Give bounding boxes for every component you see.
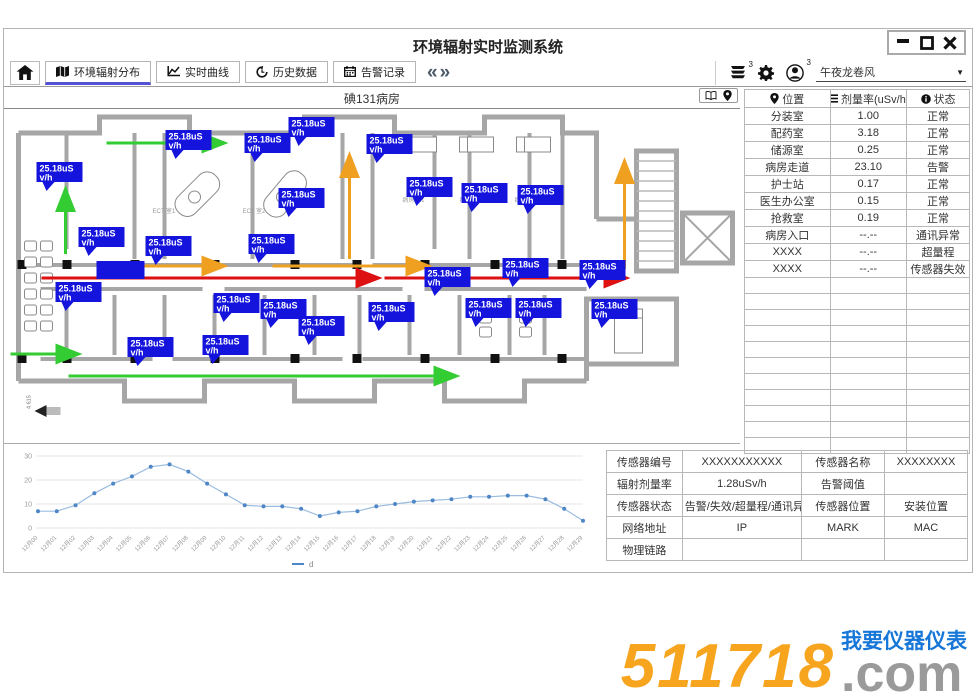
sensor-info-row: 物理链路 — [607, 539, 968, 561]
toolbar-right: 3 3 午夜龙卷风 ▼ — [715, 61, 966, 85]
x-tick-label: 12月08 — [171, 534, 190, 553]
location-cell: 病房入口 — [745, 227, 831, 244]
tab-label: 告警记录 — [361, 64, 405, 80]
app-window: 环境辐射实时监测系统 环境辐射分布实时曲线历史数据告警记录 « — [3, 28, 973, 573]
dose-cell: --.-- — [830, 244, 907, 261]
book-icon[interactable] — [705, 91, 717, 101]
tab-label: 环境辐射分布 — [74, 64, 140, 80]
user-dropdown[interactable]: 午夜龙卷风 ▼ — [816, 63, 966, 82]
dose-cell: 0.19 — [830, 210, 907, 227]
sensor-info-cell: 传感器名称 — [801, 451, 884, 473]
list-icon — [830, 94, 838, 103]
chart-panel: 010203012月0012月0112月0212月0312月0412月0512月… — [4, 448, 600, 576]
svg-text:v/h: v/h — [282, 199, 295, 209]
svg-text:v/h: v/h — [40, 173, 53, 183]
status-row-empty — [745, 310, 970, 326]
floorplan-tools — [699, 88, 738, 103]
sensor-info-row: 传感器编号XXXXXXXXXXX传感器名称XXXXXXXX — [607, 451, 968, 473]
logo-number: 511718 — [621, 642, 835, 692]
messages-icon — [730, 66, 746, 79]
status-row-empty — [745, 342, 970, 358]
sensor-tags-layer: 25.18uSv/h25.18uSv/h25.18uSv/h25.18uSv/h… — [37, 117, 638, 366]
dose-cell: 0.25 — [830, 142, 907, 159]
x-tick-label: 12月21 — [415, 534, 434, 553]
curve-icon — [167, 66, 180, 77]
dose-cell: 1.00 — [830, 108, 907, 125]
room-label: ECT 室1 — [153, 207, 177, 215]
messages-badge: 3 — [749, 60, 753, 69]
sensor-info-cell: 辐射剂量率 — [607, 473, 683, 495]
column-header: 剂量率(uSv/h) — [830, 90, 907, 108]
main-area: 碘131病房 — [4, 87, 972, 444]
status-row-empty — [745, 358, 970, 374]
status-row[interactable]: 病房入口--.--通讯异常 — [745, 227, 970, 244]
status-row[interactable]: XXXX--.--超量程 — [745, 244, 970, 261]
tab-alarms[interactable]: 告警记录 — [333, 61, 416, 83]
history-icon — [256, 66, 268, 78]
x-tick-label: 12月16 — [321, 534, 340, 553]
x-tick-label: 12月24 — [472, 534, 491, 553]
status-row-empty — [745, 294, 970, 310]
floorplan-header: 碘131病房 — [4, 87, 740, 109]
user-badge: 3 — [807, 58, 811, 67]
svg-text:v/h: v/h — [131, 348, 144, 358]
sensor-info-cell — [884, 539, 967, 561]
x-tick-label: 12月02 — [58, 534, 77, 553]
tab-strip: 环境辐射分布实时曲线历史数据告警记录 — [45, 61, 416, 85]
sensor-info-cell: 告警阈值 — [801, 473, 884, 495]
sensor-info-cell — [801, 539, 884, 561]
chevron-double-left-icon[interactable]: « — [427, 63, 438, 83]
home-button[interactable] — [10, 61, 40, 85]
x-tick-label: 12月28 — [547, 534, 566, 553]
location-cell: 病房走道 — [745, 159, 831, 176]
sensor-tag[interactable]: 25.18uSv/h — [425, 267, 471, 296]
tab-history[interactable]: 历史数据 — [245, 61, 328, 83]
room-label: ECT 室2 — [243, 207, 267, 215]
status-row[interactable]: 抢救室0.19正常 — [745, 210, 970, 227]
x-tick-label: 12月19 — [378, 534, 397, 553]
location-cell: 配药室 — [745, 125, 831, 142]
status-cell: 通讯异常 — [907, 227, 970, 244]
svg-text:v/h: v/h — [410, 188, 423, 198]
floorplan-drawing: ECT 室1ECT 室2病房001病房002病房0034.615 25.18uS… — [4, 109, 738, 442]
svg-text:v/h: v/h — [465, 194, 478, 204]
x-tick-label: 12月04 — [96, 534, 115, 553]
svg-text:v/h: v/h — [370, 145, 383, 155]
page-title: 环境辐射实时监测系统 — [4, 36, 972, 57]
sensor-tag[interactable]: 25.18uSv/h — [166, 130, 212, 159]
svg-text:v/h: v/h — [428, 278, 441, 288]
pin-icon[interactable] — [723, 90, 732, 101]
svg-text:v/h: v/h — [469, 309, 482, 319]
tab-label: 实时曲线 — [185, 64, 229, 80]
y-tick-label: 20 — [24, 478, 32, 485]
svg-text:v/h: v/h — [169, 141, 182, 151]
status-row-empty — [745, 278, 970, 294]
sensor-info-table: 传感器编号XXXXXXXXXXX传感器名称XXXXXXXX辐射剂量率1.28uS… — [606, 450, 968, 561]
location-cell: XXXX — [745, 261, 831, 278]
tab-realtime[interactable]: 实时曲线 — [156, 61, 240, 83]
x-tick-label: 12月11 — [228, 534, 247, 553]
status-panel: 位置剂量率(uSv/h)状态分装室1.00正常配药室3.18正常储源室0.25正… — [740, 87, 972, 444]
site-logo: 511718 我要仪器仪表 .com — [621, 631, 967, 692]
x-tick-label: 12月15 — [303, 534, 322, 553]
x-tick-label: 12月05 — [115, 534, 134, 553]
screen: 环境辐射实时监测系统 环境辐射分布实时曲线历史数据告警记录 « — [0, 0, 979, 700]
sensor-info-cell: 传感器位置 — [801, 495, 884, 517]
sensor-info-cell: 告警/失效/超量程/通讯异常 — [682, 495, 801, 517]
close-button[interactable] — [942, 35, 957, 50]
x-tick-label: 12月14 — [284, 534, 303, 553]
sensor-info-cell: XXXXXXXX — [884, 451, 967, 473]
dose-cell: 3.18 — [830, 125, 907, 142]
status-cell: 超量程 — [907, 244, 970, 261]
dose-cell: 0.17 — [830, 176, 907, 193]
sensor-info-cell — [884, 473, 967, 495]
svg-text:v/h: v/h — [252, 245, 265, 255]
y-tick-label: 10 — [24, 502, 32, 509]
dose-cell: 23.10 — [830, 159, 907, 176]
sensor-info-row: 网络地址IPMARKMAC — [607, 517, 968, 539]
x-tick-label: 12月06 — [134, 534, 153, 553]
info-icon — [921, 94, 931, 104]
svg-text:v/h: v/h — [372, 313, 385, 323]
status-row[interactable]: 配药室3.18正常 — [745, 125, 970, 142]
chevron-double-right-icon[interactable]: » — [440, 63, 451, 83]
svg-text:v/h: v/h — [206, 346, 219, 356]
status-row-empty — [745, 326, 970, 342]
svg-text:v/h: v/h — [59, 293, 72, 303]
home-icon — [16, 65, 34, 80]
status-cell: 传感器失效 — [907, 261, 970, 278]
x-tick-label: 12月12 — [246, 534, 265, 553]
minimize-icon — [897, 36, 910, 49]
sensor-tag[interactable]: 25.18uSv/h — [503, 258, 549, 287]
entrance-marker — [35, 405, 61, 417]
status-row[interactable]: 分装室1.00正常 — [745, 108, 970, 125]
window-controls — [887, 30, 966, 55]
sensor-info-cell: XXXXXXXXXXX — [682, 451, 801, 473]
sensor-info-cell — [682, 539, 801, 561]
location-cell: 储源室 — [745, 142, 831, 159]
svg-text:v/h: v/h — [264, 310, 277, 320]
tab-label: 历史数据 — [273, 64, 317, 80]
stairs — [637, 161, 677, 261]
bottom-area: 010203012月0012月0112月0212月0312月0412月0512月… — [4, 444, 972, 576]
map-icon — [56, 66, 69, 77]
gear-icon — [758, 65, 774, 81]
status-row[interactable]: 储源室0.25正常 — [745, 142, 970, 159]
dose-cell: 0.15 — [830, 193, 907, 210]
dose-cell: --.-- — [830, 261, 907, 278]
x-tick-label: 12月27 — [528, 534, 547, 553]
location-cell: 分装室 — [745, 108, 831, 125]
sensor-info-cell: 传感器状态 — [607, 495, 683, 517]
status-row[interactable]: 病房走道23.10告警 — [745, 159, 970, 176]
status-row[interactable]: XXXX--.--传感器失效 — [745, 261, 970, 278]
sensor-info-row: 辐射剂量率1.28uSv/h告警阈值 — [607, 473, 968, 495]
x-tick-label: 12月23 — [453, 534, 472, 553]
sensor-info-row: 传感器状态告警/失效/超量程/通讯异常传感器位置安装位置 — [607, 495, 968, 517]
svg-text:v/h: v/h — [506, 269, 519, 279]
maximize-button[interactable] — [919, 35, 934, 50]
x-tick-label: 12月29 — [566, 534, 585, 553]
x-tick-label: 12月25 — [491, 534, 510, 553]
x-tick-label: 12月26 — [509, 534, 528, 553]
calendar-icon — [344, 66, 356, 77]
status-row-empty — [745, 406, 970, 422]
status-cell: 正常 — [907, 108, 970, 125]
status-cell: 告警 — [907, 159, 970, 176]
status-table-header: 位置剂量率(uSv/h)状态 — [745, 90, 970, 108]
legend-label: d — [309, 560, 313, 569]
status-row-empty — [745, 422, 970, 438]
dose-cell: --.-- — [830, 227, 907, 244]
svg-text:v/h: v/h — [82, 238, 95, 248]
toolbar: 环境辐射分布实时曲线历史数据告警记录 « » 3 3 午夜龙卷风 — [4, 59, 972, 87]
svg-text:v/h: v/h — [217, 304, 230, 314]
sensor-tag[interactable]: 25.18uSv/h — [289, 117, 335, 146]
tab-distribution[interactable]: 环境辐射分布 — [45, 61, 151, 85]
location-cell: 护士站 — [745, 176, 831, 193]
x-tick-label: 12月03 — [77, 534, 96, 553]
x-tick-label: 12月20 — [397, 534, 416, 553]
x-tick-label: 12月13 — [265, 534, 284, 553]
column-header: 位置 — [745, 90, 831, 108]
x-tick-label: 12月17 — [340, 534, 359, 553]
pin-icon — [770, 93, 779, 104]
sensor-info-cell: 网络地址 — [607, 517, 683, 539]
column-header: 状态 — [907, 90, 970, 108]
sensor-tag[interactable]: 25.18uSv/h — [249, 234, 295, 263]
svg-text:v/h: v/h — [521, 196, 534, 206]
sensor-info-cell: MARK — [801, 517, 884, 539]
sensor-tag[interactable]: 25.18uSv/h — [146, 236, 192, 265]
y-tick-label: 0 — [28, 526, 32, 533]
y-tick-label: 30 — [24, 454, 32, 461]
sensor-tag[interactable]: 25.18uSv/h — [37, 162, 83, 191]
sensor-info-cell: 物理链路 — [607, 539, 683, 561]
sensor-tag[interactable]: 25.18uSv/h — [299, 316, 345, 345]
sensor-tag[interactable]: 25.18uSv/h — [56, 282, 102, 311]
status-table: 位置剂量率(uSv/h)状态分装室1.00正常配药室3.18正常储源室0.25正… — [744, 89, 970, 454]
svg-text:v/h: v/h — [519, 309, 532, 319]
status-row[interactable]: 护士站0.17正常 — [745, 176, 970, 193]
svg-text:v/h: v/h — [248, 144, 261, 154]
sensor-tag-solid[interactable] — [97, 261, 145, 279]
svg-text:v/h: v/h — [149, 247, 162, 257]
logo-suffix: .com — [841, 656, 962, 692]
location-cell: 医生办公室 — [745, 193, 831, 210]
user-button[interactable]: 3 — [786, 64, 804, 82]
user-name: 午夜龙卷风 — [816, 64, 956, 80]
sensor-info-panel: 传感器编号XXXXXXXXXXX传感器名称XXXXXXXX辐射剂量率1.28uS… — [600, 448, 972, 576]
messages-button[interactable]: 3 — [730, 66, 746, 79]
dropdown-arrow-icon: ▼ — [956, 68, 966, 77]
status-cell: 正常 — [907, 125, 970, 142]
close-icon — [943, 36, 957, 50]
status-row-empty — [745, 390, 970, 406]
x-tick-label: 12月10 — [209, 534, 228, 553]
svg-text:v/h: v/h — [292, 128, 305, 138]
x-tick-label: 12月09 — [190, 534, 209, 553]
location-cell: XXXX — [745, 244, 831, 261]
floorplan-title: 碘131病房 — [4, 90, 740, 107]
user-icon — [786, 64, 804, 82]
sensor-info-cell: 传感器编号 — [607, 451, 683, 473]
status-row[interactable]: 医生办公室0.15正常 — [745, 193, 970, 210]
x-tick-label: 12月07 — [152, 534, 171, 553]
status-cell: 正常 — [907, 193, 970, 210]
sensor-tag[interactable]: 25.18uSv/h — [518, 185, 564, 214]
sensor-tag[interactable]: 25.18uSv/h — [214, 293, 260, 322]
sensor-info-cell: MAC — [884, 517, 967, 539]
settings-button[interactable] — [758, 65, 774, 81]
status-cell: 正常 — [907, 176, 970, 193]
sensor-info-cell: 安装位置 — [884, 495, 967, 517]
sensor-info-cell: IP — [682, 517, 801, 539]
x-tick-label: 12月00 — [21, 534, 40, 553]
svg-text:v/h: v/h — [595, 310, 608, 320]
minimize-button[interactable] — [896, 35, 911, 50]
status-cell: 正常 — [907, 210, 970, 227]
x-tick-label: 12月18 — [359, 534, 378, 553]
floorplan-panel: 碘131病房 — [4, 87, 740, 444]
x-tick-label: 12月22 — [434, 534, 453, 553]
maximize-icon — [920, 36, 934, 50]
svg-text:v/h: v/h — [583, 271, 596, 281]
page-nav: « » — [427, 63, 450, 83]
svg-text:v/h: v/h — [302, 327, 315, 337]
dose-trend-chart: 010203012月0012月0112月0212月0312月0412月0512月… — [8, 448, 596, 572]
location-cell: 抢救室 — [745, 210, 831, 227]
dimension-label: 4.615 — [27, 395, 33, 409]
x-tick-label: 12月01 — [40, 534, 59, 553]
sensor-tag[interactable]: 25.18uSv/h — [79, 227, 125, 256]
sensor-info-cell: 1.28uSv/h — [682, 473, 801, 495]
title-bar: 环境辐射实时监测系统 — [4, 29, 972, 59]
status-row-empty — [745, 374, 970, 390]
status-cell: 正常 — [907, 142, 970, 159]
sensor-tag[interactable]: 25.18uSv/h — [580, 260, 626, 289]
